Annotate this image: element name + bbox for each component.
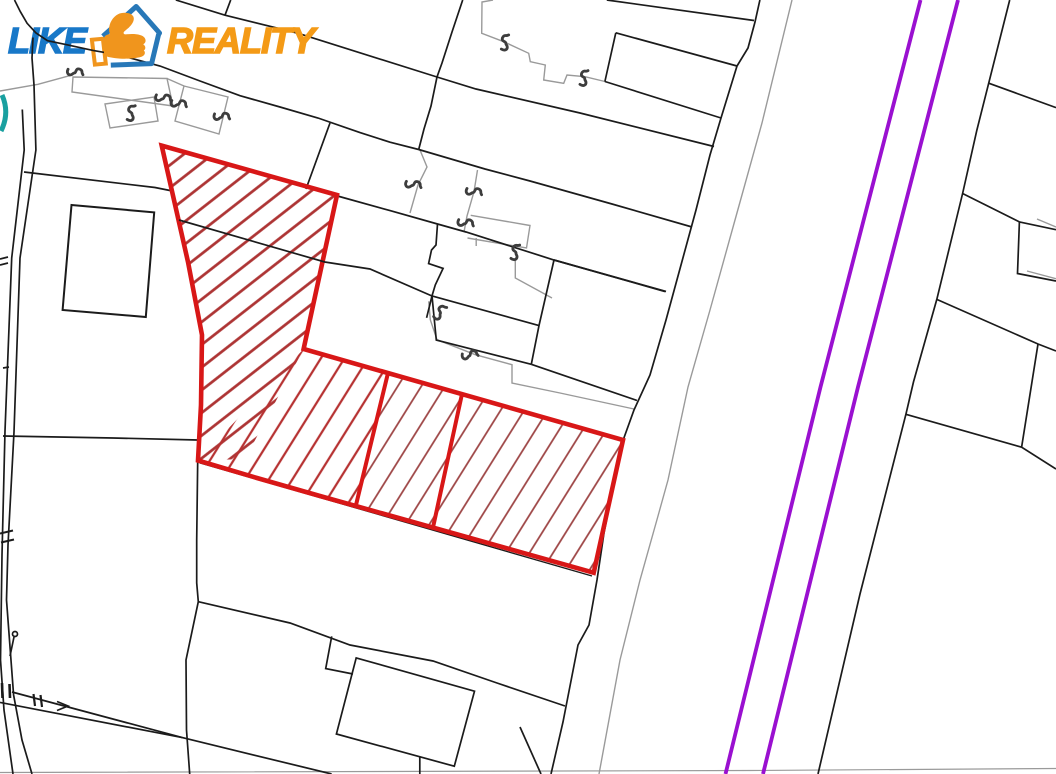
svg-text:REALITY: REALITY (167, 20, 318, 61)
